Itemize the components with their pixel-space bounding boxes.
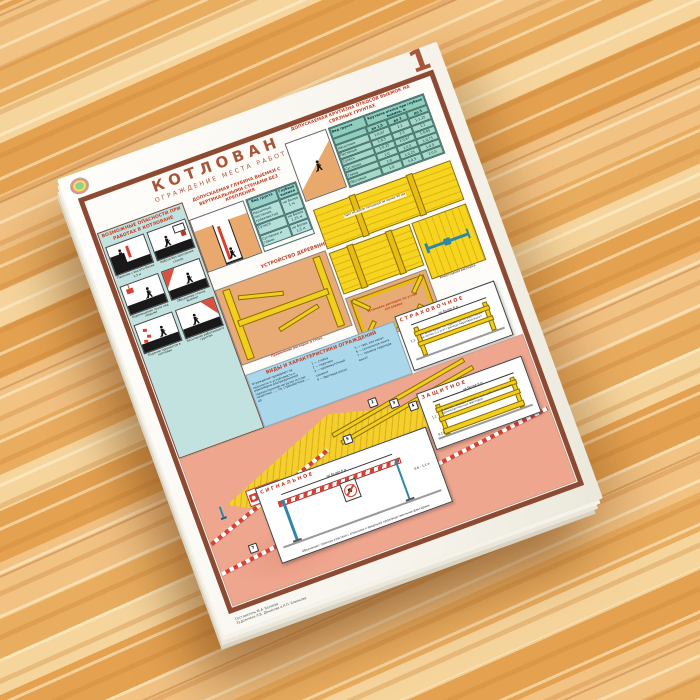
screw-jack-icon xyxy=(426,232,468,250)
height-dimension: 1,1 xyxy=(431,414,437,419)
tape-post xyxy=(394,459,411,500)
no-entry-icon xyxy=(343,482,360,499)
no-entry-sign-plate xyxy=(339,478,362,503)
batten xyxy=(405,173,427,217)
jack-nut xyxy=(443,237,452,246)
strut xyxy=(238,291,284,300)
tape-post xyxy=(281,500,298,541)
photo-scene: 1 КОТЛОВАН ОГРАЖДЕНИЕ МЕСТА РАБОТ ДОПУСК… xyxy=(0,0,700,700)
callout-chip: 7 xyxy=(248,543,259,554)
tape-post xyxy=(219,506,225,517)
batten xyxy=(347,243,369,289)
collapse-wedge-icon xyxy=(162,268,180,288)
batten xyxy=(384,230,406,276)
hook-icon xyxy=(127,285,129,289)
publisher-logo xyxy=(69,176,91,196)
collapse-wedge-icon xyxy=(201,298,219,318)
height-dimension: 1,1 xyxy=(410,338,416,343)
danger-mark xyxy=(180,230,186,236)
height-dimension: 0,8 – 1,1 м xyxy=(414,461,431,470)
falling-rocks-icon xyxy=(143,329,147,332)
load-icon xyxy=(126,287,134,294)
